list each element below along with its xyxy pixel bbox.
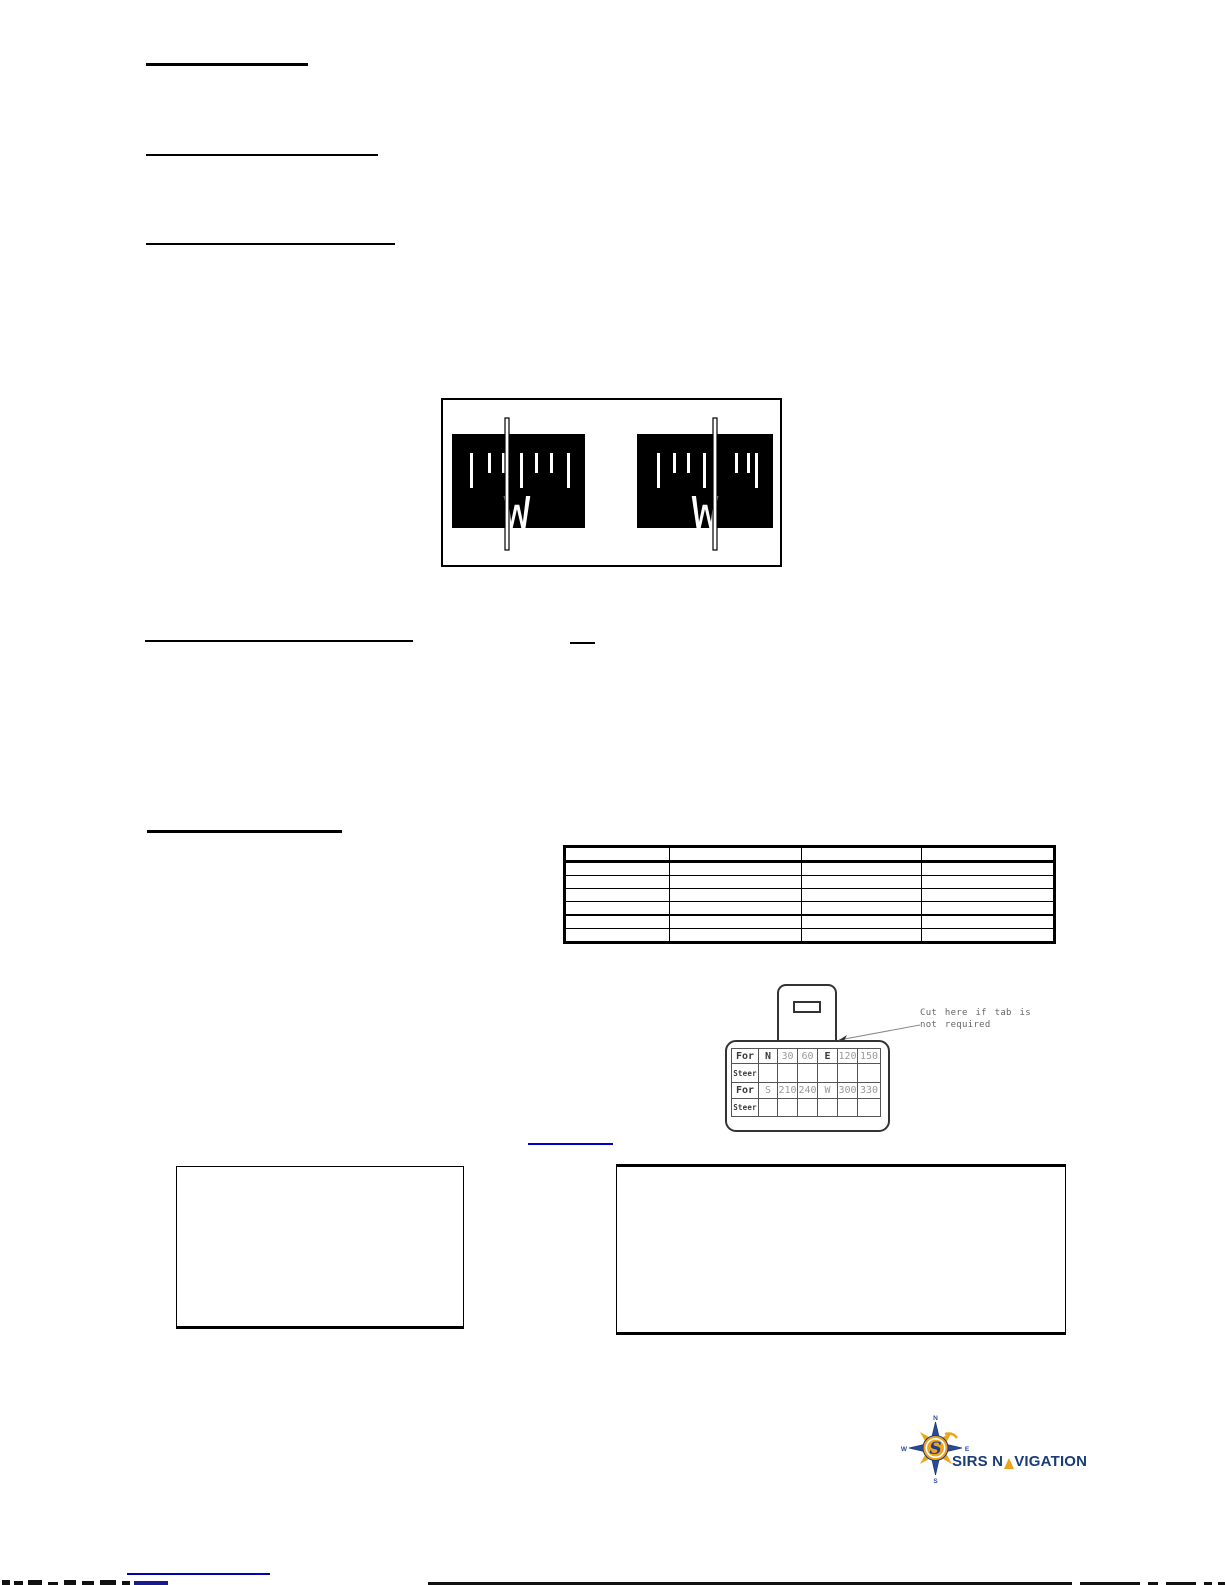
deviation-table bbox=[563, 845, 1056, 944]
inline-underline bbox=[570, 642, 595, 644]
cutoff-text-fragment bbox=[82, 1581, 94, 1585]
table-cell bbox=[670, 929, 802, 943]
compass-letter-n: N bbox=[933, 1415, 938, 1422]
steer-card-cell bbox=[759, 1099, 778, 1117]
steer-card-cell bbox=[778, 1099, 798, 1117]
lubber-line-left bbox=[505, 418, 509, 550]
steer-card-cell: 60 bbox=[798, 1049, 818, 1064]
steering-card-grid: ForN3060E120150SteerForS210240W300330Ste… bbox=[731, 1048, 881, 1117]
cutoff-text-fragment bbox=[14, 1581, 23, 1585]
table-row bbox=[565, 915, 1055, 929]
hyperlink-underline[interactable] bbox=[528, 1143, 613, 1145]
steer-card-cell: N bbox=[759, 1049, 778, 1064]
cutoff-link-fragment bbox=[134, 1581, 168, 1585]
table-row: ForS210240W300330 bbox=[732, 1083, 881, 1099]
heading-underline-1 bbox=[146, 63, 308, 66]
compass-letter-w: W bbox=[901, 1446, 908, 1453]
logo-text-prefix: SIRS N bbox=[952, 1453, 1003, 1470]
steer-card-cell: 120 bbox=[838, 1049, 858, 1064]
table-row: Steer bbox=[732, 1099, 881, 1117]
table-row bbox=[565, 862, 1055, 876]
cutoff-text-fragment bbox=[122, 1581, 130, 1585]
steer-card-cell: W bbox=[818, 1083, 838, 1099]
table-cell bbox=[565, 876, 670, 889]
table-cell bbox=[565, 902, 670, 916]
steer-card-cell bbox=[798, 1064, 818, 1083]
table-row: Steer bbox=[732, 1064, 881, 1083]
table-row bbox=[565, 847, 1055, 862]
table-row bbox=[565, 889, 1055, 902]
heading-underline-3 bbox=[146, 243, 395, 245]
leader-line bbox=[830, 1016, 926, 1046]
table-cell bbox=[922, 847, 1055, 862]
table-cell bbox=[802, 862, 922, 876]
table-cell bbox=[802, 915, 922, 929]
table-cell bbox=[670, 915, 802, 929]
document-page: W W ForN3060E120150SteerForS210240W30033… bbox=[0, 0, 1225, 1585]
logo-gold-triangle-a bbox=[1004, 1458, 1014, 1469]
steer-card-cell: 30 bbox=[778, 1049, 798, 1064]
note-box-left bbox=[176, 1166, 464, 1329]
table-cell bbox=[670, 847, 802, 862]
table-cell bbox=[922, 902, 1055, 916]
compass-letter-s: S bbox=[933, 1478, 938, 1485]
logo-letter-s: S bbox=[929, 1439, 941, 1459]
heading-underline-4 bbox=[145, 640, 413, 642]
table-cell bbox=[802, 889, 922, 902]
steer-card-cell: 300 bbox=[838, 1083, 858, 1099]
cutoff-text-fragment bbox=[100, 1580, 116, 1585]
steer-card-cell: Steer bbox=[732, 1064, 759, 1083]
annotation-line-2: not required bbox=[920, 1020, 1040, 1032]
heading-underline-5 bbox=[147, 830, 342, 833]
table-cell bbox=[922, 915, 1055, 929]
heading-underline-2 bbox=[146, 154, 378, 156]
table-cell bbox=[922, 862, 1055, 876]
note-box-right bbox=[616, 1164, 1066, 1335]
table-cell bbox=[922, 876, 1055, 889]
steer-card-cell: S bbox=[759, 1083, 778, 1099]
cutoff-text-fragment bbox=[64, 1580, 76, 1585]
steer-card-cell bbox=[858, 1099, 881, 1117]
steer-card-cell: 330 bbox=[858, 1083, 881, 1099]
cutoff-text-fragment bbox=[2, 1580, 10, 1585]
steer-card-cell bbox=[778, 1064, 798, 1083]
logo-wordmark: SIRS NVIGATION bbox=[952, 1453, 1087, 1470]
table-cell bbox=[922, 889, 1055, 902]
steer-card-cell: E bbox=[818, 1049, 838, 1064]
steer-card-cell: For bbox=[732, 1049, 759, 1064]
compass-card-figure: W W bbox=[441, 398, 782, 567]
table-cell bbox=[670, 876, 802, 889]
footer-hyperlink-underline[interactable] bbox=[127, 1573, 270, 1575]
steer-card-cell bbox=[818, 1099, 838, 1117]
table-cell bbox=[802, 902, 922, 916]
table-cell bbox=[802, 847, 922, 862]
logo-text-suffix: VIGATION bbox=[1014, 1453, 1087, 1470]
table-cell bbox=[565, 889, 670, 902]
table-cell bbox=[670, 902, 802, 916]
steer-card-cell: For bbox=[732, 1083, 759, 1099]
annotation-line-1: Cut here if tab is bbox=[920, 1008, 1040, 1020]
steer-card-cell bbox=[838, 1099, 858, 1117]
table-row bbox=[565, 929, 1055, 943]
compass-letter-e: E bbox=[965, 1446, 970, 1453]
table-cell bbox=[670, 862, 802, 876]
table-cell bbox=[565, 847, 670, 862]
cutoff-text-fragment bbox=[28, 1580, 42, 1585]
steer-card-cell: 150 bbox=[858, 1049, 881, 1064]
steer-card-cell bbox=[759, 1064, 778, 1083]
table-row bbox=[565, 876, 1055, 889]
steer-card-cell bbox=[798, 1099, 818, 1117]
steer-card-cell bbox=[858, 1064, 881, 1083]
table-row: ForN3060E120150 bbox=[732, 1049, 881, 1064]
table-cell bbox=[670, 889, 802, 902]
tab-slot bbox=[793, 1001, 821, 1013]
steer-card-cell bbox=[818, 1064, 838, 1083]
steering-card-tab bbox=[777, 984, 837, 1044]
table-cell bbox=[802, 929, 922, 943]
table-cell bbox=[802, 876, 922, 889]
cut-here-annotation: Cut here if tab is not required bbox=[920, 1008, 1040, 1031]
steer-card-cell: Steer bbox=[732, 1099, 759, 1117]
steer-card-cell bbox=[838, 1064, 858, 1083]
steer-card-cell: 240 bbox=[798, 1083, 818, 1099]
lubber-line-right bbox=[713, 418, 717, 550]
table-cell bbox=[565, 915, 670, 929]
table-cell bbox=[565, 862, 670, 876]
table-row bbox=[565, 902, 1055, 916]
table-cell bbox=[922, 929, 1055, 943]
steer-card-cell: 210 bbox=[778, 1083, 798, 1099]
table-cell bbox=[565, 929, 670, 943]
